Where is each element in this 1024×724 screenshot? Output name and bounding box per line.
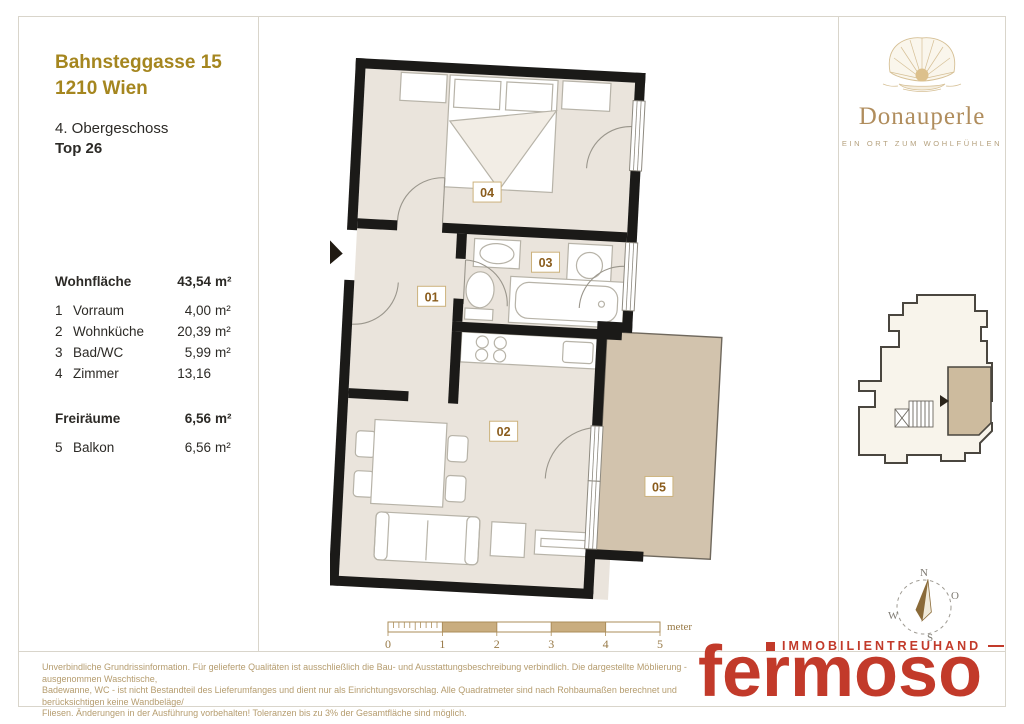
area-table: Wohnfläche 43,54 m² 1 Vorraum 4,00 m² 2 … [55,274,237,461]
table-row: 5 Balkon 6,56 m² [55,440,237,461]
free-area-header: Freiräume 6,56 m² [55,411,237,432]
room-label-04: 04 [473,182,501,202]
agency-rule [988,645,1004,647]
scale-bar: 0 1 2 3 4 5 meter [382,616,692,652]
svg-text:04: 04 [480,186,494,200]
svg-text:0: 0 [385,637,391,651]
shell-icon [877,34,967,96]
svg-text:5: 5 [657,637,663,651]
table-row: 1 Vorraum 4,00 m² [55,303,237,324]
compass-n: N [920,567,928,579]
scale-numbers: 0 1 2 3 4 5 [385,637,663,651]
address-line2: 1210 Wien [55,76,222,102]
floor-label: 4. Obergeschoss [55,120,168,137]
site-key-plan [845,283,1007,483]
brand-logo: Donauperle EIN ORT ZUM WOHLFÜHLEN [840,34,1004,148]
frame-top [18,16,1006,17]
scale-unit-label: meter [667,621,692,633]
agency-name: fermoso [698,640,982,704]
unit-label: Top 26 [55,140,102,157]
svg-text:05: 05 [652,480,666,494]
living-area-header: Wohnfläche 43,54 m² [55,274,237,295]
floor-plan: 01 02 03 04 05 [330,46,730,630]
unit-highlight [948,367,991,435]
room-label-02: 02 [490,421,518,441]
disclaimer-line1: Unverbindliche Grundrissinformation. Für… [42,662,702,685]
svg-text:02: 02 [497,425,511,439]
address-line1: Bahnsteggasse 15 [55,50,222,76]
svg-text:01: 01 [425,290,439,304]
room-label-03: 03 [532,252,560,272]
table-row: 4 Zimmer 13,16 [55,366,237,387]
disclaimer-line2: Badewanne, WC - ist nicht Bestandteil de… [42,685,702,708]
brand-tagline: EIN ORT ZUM WOHLFÜHLEN [840,139,1004,148]
svg-text:3: 3 [548,637,554,651]
brand-name: Donauperle [840,103,1004,131]
compass-w: W [888,610,899,622]
floorplan-sheet: Bahnsteggasse 15 1210 Wien 4. Obergescho… [0,0,1024,724]
compass-needle-icon [914,578,936,622]
disclaimer-line3: Fliesen. Änderungen in der Ausführung vo… [42,708,702,720]
svg-text:2: 2 [494,637,500,651]
divider-right-column [838,16,839,651]
svg-text:1: 1 [439,637,445,651]
disclaimer-text: Unverbindliche Grundrissinformation. Für… [42,662,702,720]
table-row: 2 Wohnküche 20,39 m² [55,324,237,345]
svg-text:4: 4 [603,637,609,651]
room-label-05: 05 [645,476,673,496]
address: Bahnsteggasse 15 1210 Wien [55,50,222,102]
compass-e: O [951,590,959,602]
entry-arrow-icon [330,240,343,267]
table-row: 3 Bad/WC 5,99 m² [55,345,237,366]
divider-left-column [258,16,259,651]
balcony-floor [595,332,721,560]
room-label-01: 01 [418,286,446,306]
frame-left [18,16,19,706]
svg-text:03: 03 [539,256,553,270]
